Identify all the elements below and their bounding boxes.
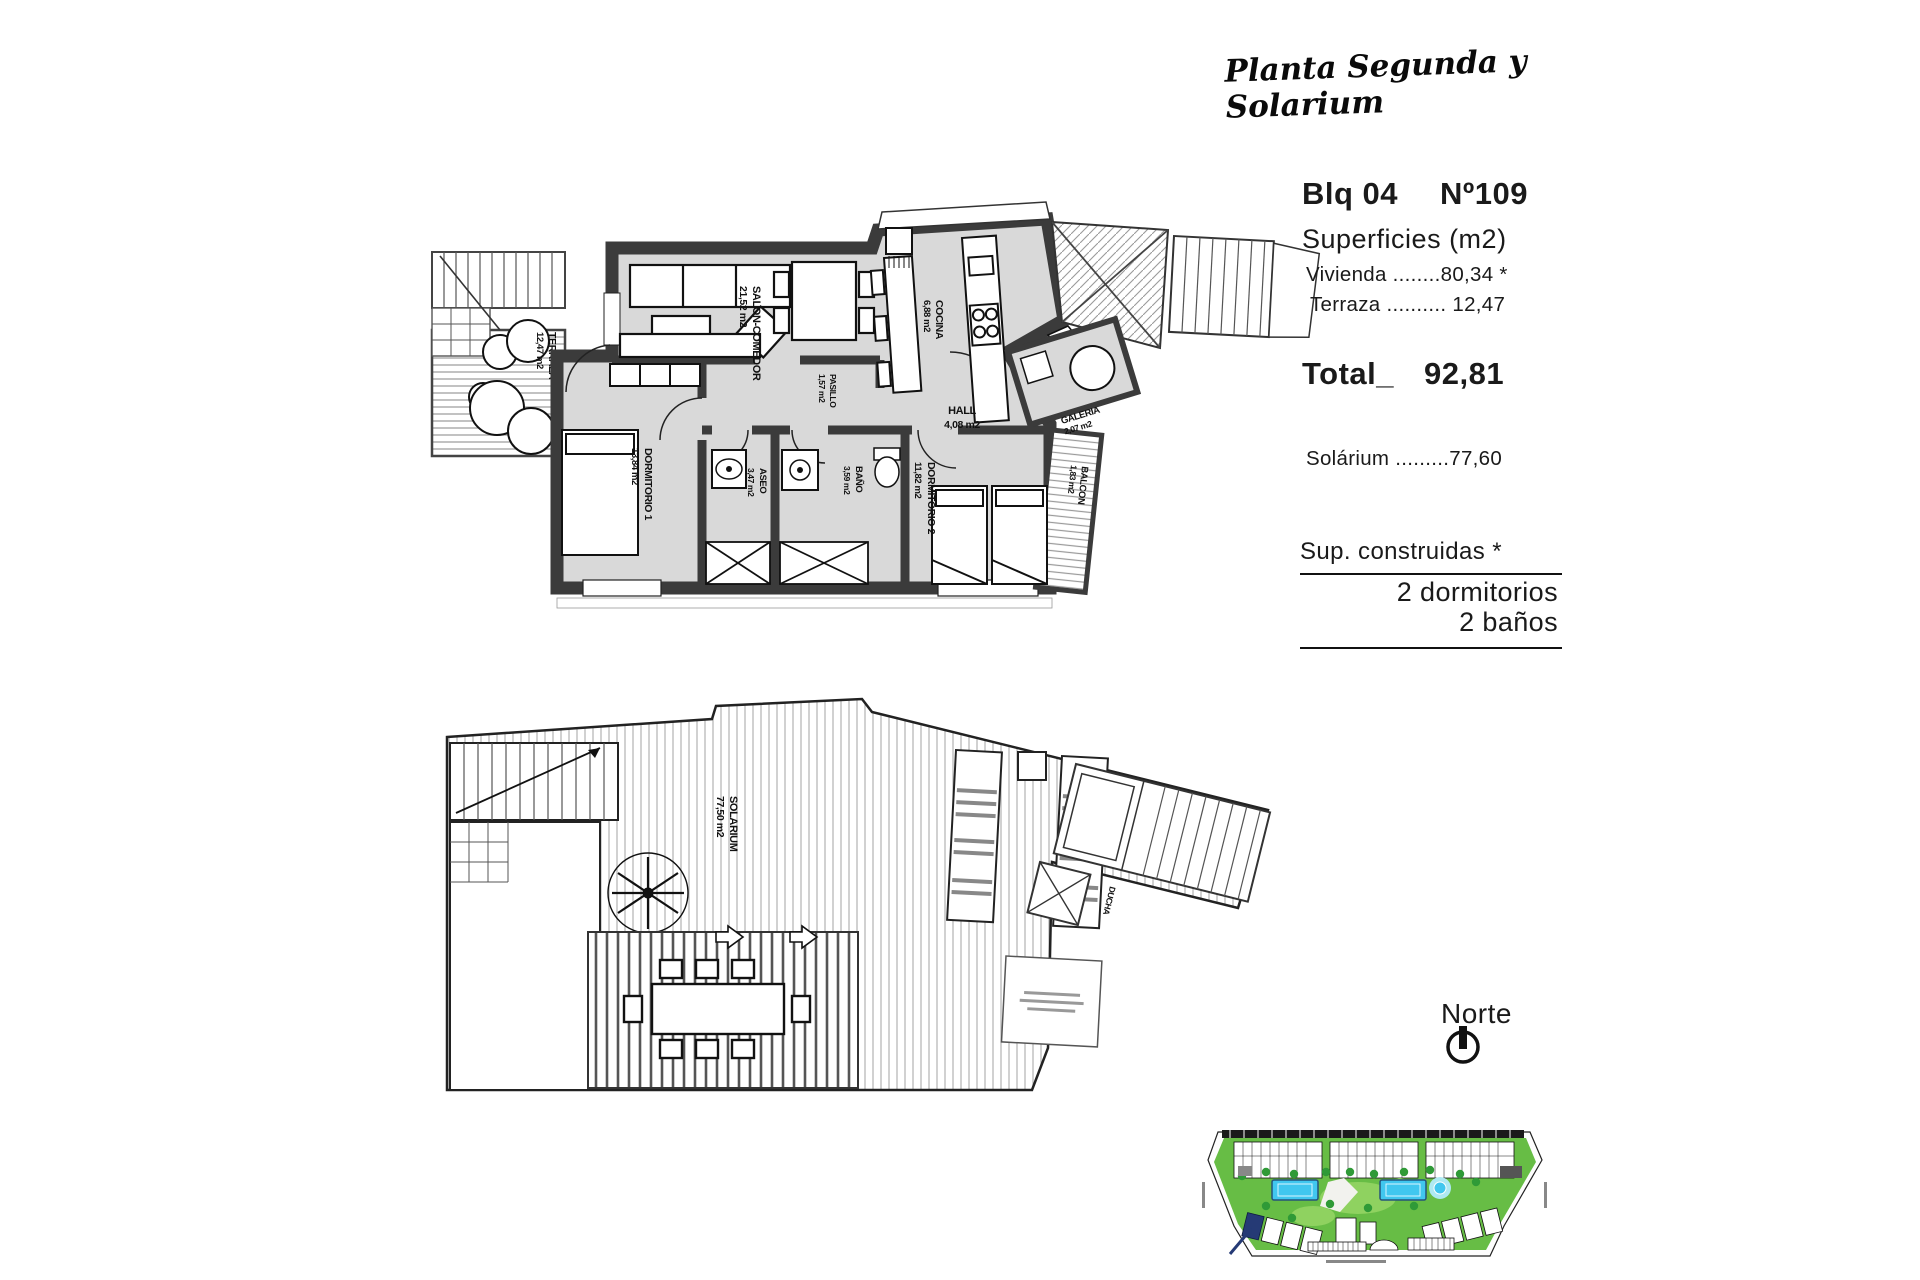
north-compass-icon xyxy=(1448,1026,1478,1062)
block-unit-line: Blq 04 Nº109 xyxy=(1302,176,1528,212)
parking-strip xyxy=(1222,1130,1524,1138)
north-label: Norte xyxy=(1441,998,1512,1030)
floor-plan-drawing: TERRAZA 12,47 m2 xyxy=(0,0,1920,1280)
solarium-line: Solárium .........77,60 xyxy=(1306,447,1502,471)
jacuzzi-zone xyxy=(1001,956,1101,1047)
plan-sheet: TERRAZA 12,47 m2 xyxy=(0,0,1920,1280)
aseo-area: 3,47 m2 xyxy=(746,468,756,497)
total-label: Total_ xyxy=(1302,356,1394,392)
jacuzzi-area-marks xyxy=(1019,991,1084,1013)
pasillo-label: PASILLO xyxy=(828,374,838,408)
shower-trays xyxy=(706,542,868,584)
block-label: Blq 04 xyxy=(1302,176,1398,212)
terraza-line: Terraza .......... 12,47 xyxy=(1310,293,1505,317)
dormitorio1-label: DORMITORIO 1 xyxy=(642,448,654,521)
hall-label: HALL xyxy=(948,405,976,417)
outdoor-table xyxy=(652,984,784,1034)
site-plan xyxy=(1202,1130,1547,1263)
hall-area: 4,08 m2 xyxy=(944,419,980,431)
unit-number: Nº109 xyxy=(1440,176,1528,212)
aseo-label: ASEO xyxy=(757,468,768,493)
dining-table xyxy=(792,262,856,340)
bano-area: 3,59 m2 xyxy=(842,466,852,495)
communal-stairs xyxy=(1169,236,1320,340)
upper-floor-plan: TERRAZA 12,47 m2 xyxy=(432,202,1320,608)
sideboard xyxy=(620,334,760,357)
dormitorio2-label: DORMITORIO 2 xyxy=(925,462,937,535)
terraza-area: 12,47 m2 xyxy=(534,332,545,369)
surfaces-heading: Superficies (m2) xyxy=(1302,224,1507,255)
sofa xyxy=(630,265,790,307)
terraza-room: TERRAZA 12,47 m2 xyxy=(432,252,565,456)
dormitorio2-area: 11,82 m2 xyxy=(912,462,923,499)
pasillo-area: 1,57 m2 xyxy=(817,374,827,403)
solarium-area: 77,50 m2 xyxy=(714,796,726,838)
ducha-tray xyxy=(1027,862,1090,925)
solarium-plan: DUCHA xyxy=(447,699,1270,1090)
solarium-label: SOLARIUM xyxy=(727,796,739,852)
sup-construidas-heading: Sup. construidas * xyxy=(1300,538,1562,575)
total-line: Total_ 92,81 xyxy=(1302,356,1504,392)
pergola xyxy=(588,932,858,1088)
total-value: 92,81 xyxy=(1424,356,1504,392)
cocina-area: 6,88 m2 xyxy=(921,300,932,332)
bedrooms-count: 2 dormitorios xyxy=(1300,577,1558,607)
baths-count: 2 baños xyxy=(1300,607,1558,637)
sheet-title: Planta Segunda y Solarium xyxy=(1224,42,1556,125)
solarium-stairs xyxy=(450,743,618,820)
bano-label: BAÑO xyxy=(853,466,864,492)
built-surfaces-block: Sup. construidas * 2 dormitorios 2 baños xyxy=(1300,538,1562,649)
salon-area: 21,52 m2 xyxy=(737,286,749,328)
solarium-void-room xyxy=(450,822,600,1090)
salon-label: SALON-COMEDOR xyxy=(750,286,762,381)
room-count-lines: 2 dormitorios 2 baños xyxy=(1300,577,1562,649)
cocina-label: COCINA xyxy=(933,300,945,340)
dormitorio1-area: 13,84 m2 xyxy=(629,448,640,485)
vivienda-line: Vivienda ........80,34 * xyxy=(1306,263,1508,287)
ducha-label: DUCHA xyxy=(1101,886,1118,917)
